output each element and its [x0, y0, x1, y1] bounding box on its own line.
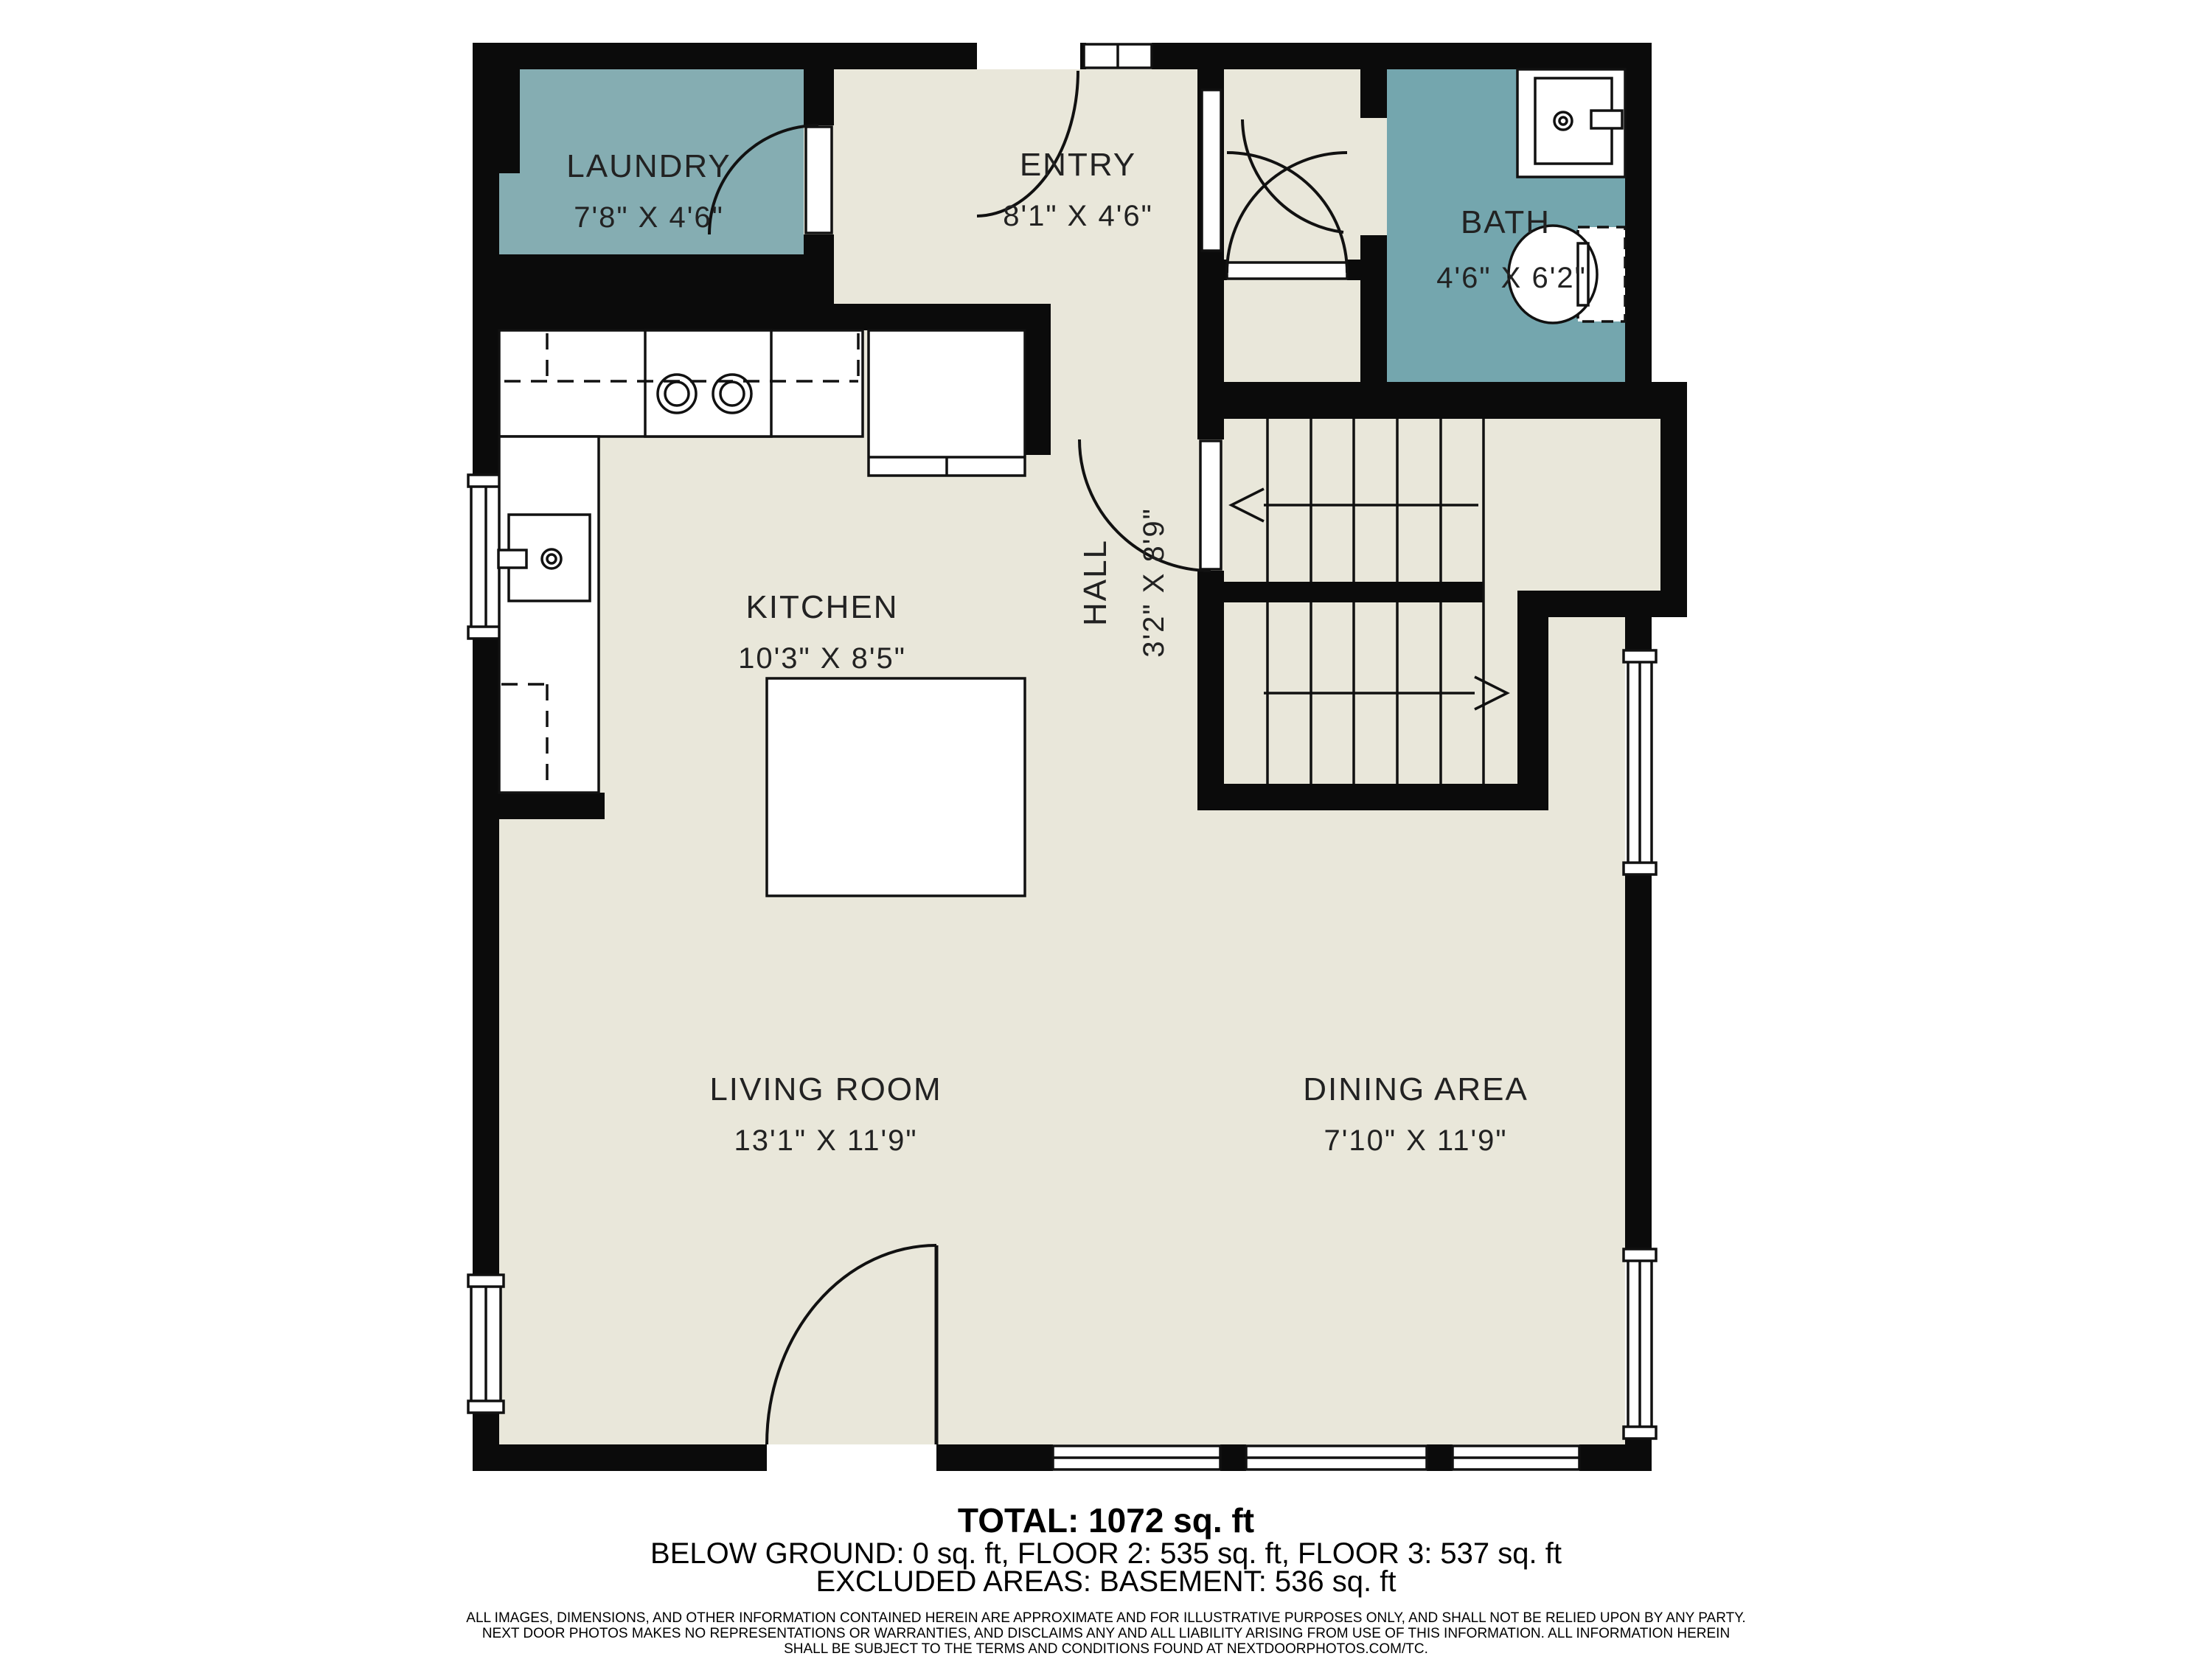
- label-hall: HALL: [1077, 539, 1113, 626]
- label-entry: ENTRY: [1020, 147, 1136, 183]
- window-living-left: [468, 1275, 504, 1413]
- wall-stair-top-band: [1197, 382, 1687, 419]
- floor-plan-page: LAUNDRY 7'8" X 4'6" ENTRY 8'1" X 4'6" BA…: [0, 0, 2212, 1659]
- wall-left-middle: [473, 634, 499, 1279]
- dims-living: 13'1" X 11'9": [734, 1124, 917, 1157]
- wall-laundry-corner-jog: [473, 43, 520, 173]
- dims-entry: 8'1" X 4'6": [1003, 200, 1153, 232]
- dims-laundry: 7'8" X 4'6": [574, 201, 724, 234]
- wall-laundry-bottom: [473, 254, 834, 330]
- wall-stair-divider: [1197, 582, 1484, 602]
- wall-closet-bottom-left: [1197, 260, 1227, 280]
- label-bath: BATH: [1461, 204, 1551, 240]
- kitchen-sink-icon: [498, 515, 590, 601]
- footer-excluded: EXCLUDED AREAS: BASEMENT: 536 sq. ft: [816, 1565, 1397, 1598]
- kitchen-counter-left: [499, 437, 599, 793]
- wall-laundry-right-upper: [804, 69, 834, 125]
- wall-stair-bottom: [1197, 784, 1548, 810]
- window-dining-right-upper: [1624, 650, 1656, 874]
- wall-bottom-mullion-1: [1220, 1444, 1246, 1471]
- wall-bath-left-lower: [1360, 235, 1387, 382]
- footer-disclaimer-1: ALL IMAGES, DIMENSIONS, AND OTHER INFORM…: [466, 1610, 1745, 1626]
- wall-hall-stair-lower: [1197, 571, 1224, 810]
- dims-kitchen: 10'3" X 8'5": [738, 642, 906, 675]
- stove-icon: [645, 330, 771, 437]
- dims-hall: 3'2" X 8'9": [1138, 507, 1170, 658]
- wall-kitchen-stub: [499, 793, 605, 819]
- footer: TOTAL: 1072 sq. ft BELOW GROUND: 0 sq. f…: [466, 1501, 1745, 1657]
- wall-entry-bottom: [834, 304, 1051, 330]
- dims-bath: 4'6" X 6'2": [1436, 262, 1587, 294]
- label-living: LIVING ROOM: [709, 1071, 942, 1107]
- wall-top-left: [473, 43, 977, 69]
- dims-dining: 7'10" X 11'9": [1324, 1124, 1507, 1157]
- wall-bottom-left: [473, 1444, 767, 1471]
- window-bottom-2: [1246, 1446, 1427, 1470]
- wall-top-right: [1152, 43, 1652, 69]
- footer-total: TOTAL: 1072 sq. ft: [958, 1501, 1254, 1540]
- wall-bottom-door-right: [936, 1444, 1053, 1471]
- kitchen-fridge: [869, 330, 1025, 476]
- window-bottom-1: [1053, 1446, 1220, 1470]
- wall-bath-left-upper: [1360, 69, 1387, 118]
- kitchen-island: [767, 678, 1025, 896]
- window-bottom-3: [1453, 1446, 1579, 1470]
- wall-stair-bump-right: [1660, 382, 1687, 617]
- wall-laundry-right-lower: [804, 234, 834, 254]
- window-dining-right-lower: [1624, 1249, 1656, 1439]
- wall-stair-step-vertical: [1517, 591, 1548, 810]
- wall-kitchen-entry: [1025, 330, 1051, 455]
- footer-disclaimer-3: SHALL BE SUBJECT TO THE TERMS AND CONDIT…: [784, 1641, 1428, 1657]
- wall-bottom-mullion-2: [1427, 1444, 1453, 1471]
- floor-plan-canvas: LAUNDRY 7'8" X 4'6" ENTRY 8'1" X 4'6" BA…: [0, 0, 2212, 1659]
- bath-vanity-icon: [1517, 69, 1625, 177]
- label-kitchen: KITCHEN: [745, 589, 898, 625]
- label-dining: DINING AREA: [1303, 1071, 1528, 1107]
- label-laundry: LAUNDRY: [566, 148, 731, 184]
- wall-right-dining-middle: [1625, 870, 1652, 1253]
- footer-disclaimer-2: NEXT DOOR PHOTOS MAKES NO REPRESENTATION…: [482, 1626, 1730, 1641]
- window-entry-top: [1084, 44, 1152, 68]
- wall-right-bath: [1625, 43, 1652, 382]
